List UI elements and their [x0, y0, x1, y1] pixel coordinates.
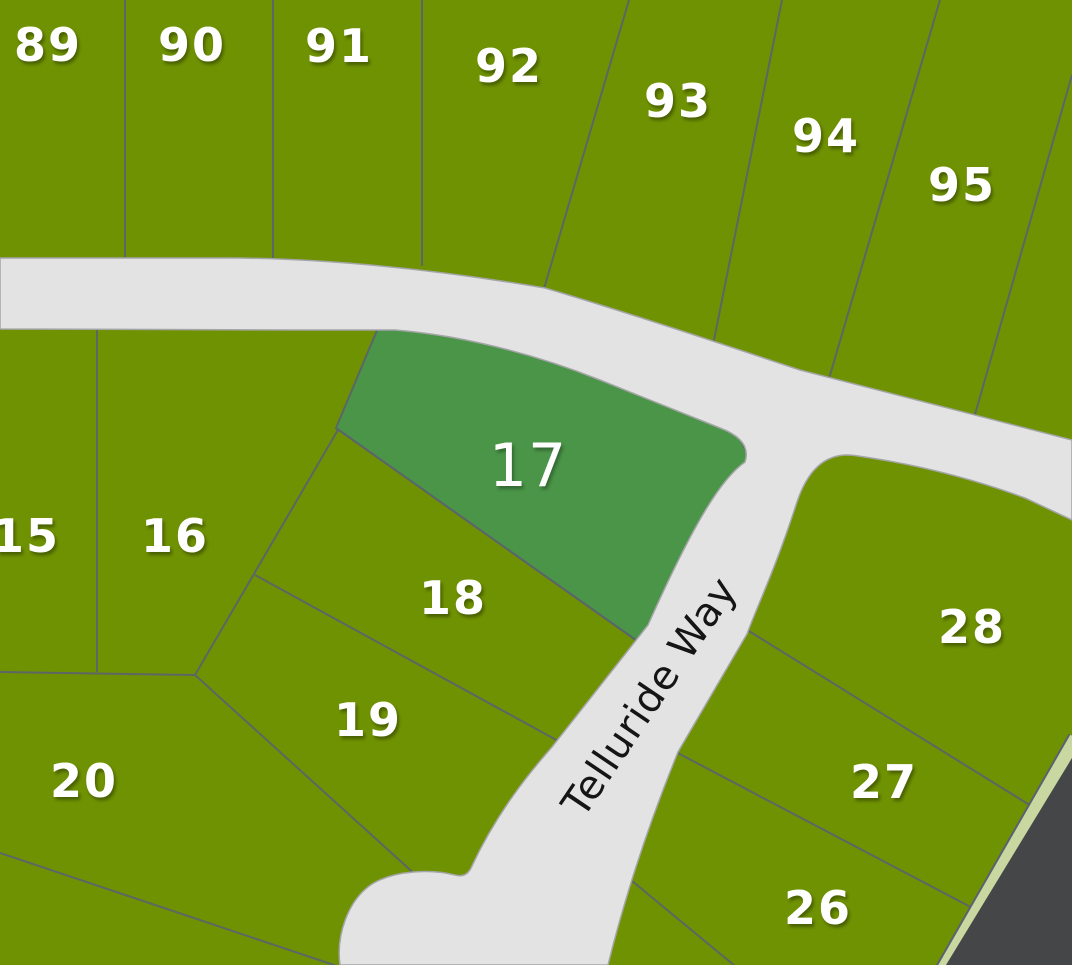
- lot-91-label[interactable]: 91: [305, 19, 373, 73]
- lot-92-label[interactable]: 92: [475, 39, 543, 93]
- lot-28-label[interactable]: 28: [938, 600, 1006, 654]
- lot-15-label[interactable]: 15: [0, 509, 60, 563]
- lot-18-label[interactable]: 18: [419, 571, 487, 625]
- lot-94-label[interactable]: 94: [792, 109, 860, 163]
- plat-map: 89909192939495151618192026272817Tellurid…: [0, 0, 1072, 965]
- lot-90-label[interactable]: 90: [158, 18, 226, 72]
- lot-17-label[interactable]: 17: [489, 431, 567, 501]
- lot-95-label[interactable]: 95: [928, 158, 996, 212]
- lot-27-label[interactable]: 27: [850, 755, 918, 809]
- lot-16-label[interactable]: 16: [141, 509, 209, 563]
- lot-20-label[interactable]: 20: [50, 754, 118, 808]
- lot-89-label[interactable]: 89: [14, 18, 82, 72]
- lot-93-label[interactable]: 93: [644, 74, 712, 128]
- lot-19-label[interactable]: 19: [334, 693, 402, 747]
- lot-26-label[interactable]: 26: [784, 881, 852, 935]
- subdivision-map-canvas: 89909192939495151618192026272817Tellurid…: [0, 0, 1072, 965]
